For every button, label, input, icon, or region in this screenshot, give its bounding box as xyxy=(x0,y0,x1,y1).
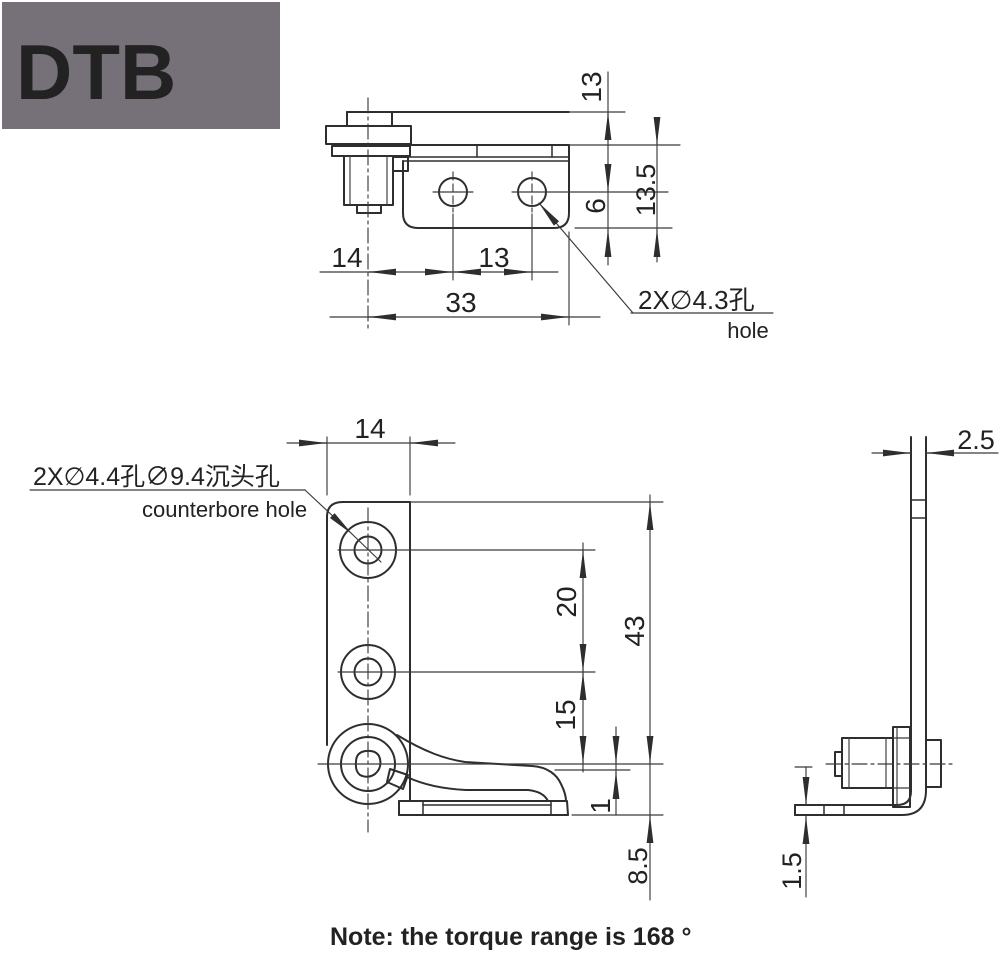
hole-leader-line xyxy=(539,203,633,313)
arm-bottom-edge xyxy=(407,777,548,801)
top-dim-13: 13 xyxy=(576,71,607,102)
side-view-dimensions: 2.5 1.5 xyxy=(777,425,998,897)
front-dim-43: 43 xyxy=(619,615,650,646)
front-dim-20: 20 xyxy=(551,586,582,617)
counterbore-leader-line xyxy=(305,490,352,534)
logo-badge: DTB xyxy=(2,2,280,129)
technical-drawing: DTB xyxy=(0,0,1000,955)
side-view: 2.5 1.5 xyxy=(777,425,998,897)
knuckle-cap-top xyxy=(347,112,392,126)
side-view-geometry xyxy=(795,437,954,815)
knuckle-cap-bottom xyxy=(357,205,381,213)
knuckle-washer xyxy=(332,146,410,156)
top-hole-label: 2X∅4.3孔 xyxy=(638,285,755,315)
top-dim-13-holes: 13 xyxy=(478,242,509,273)
side-dim-1-5: 1.5 xyxy=(777,852,807,890)
knuckle-tab xyxy=(393,157,408,171)
front-hole-label: 2X∅4.4孔∅9.4沉头孔 xyxy=(33,463,280,491)
side-plate-outer xyxy=(795,437,926,815)
front-hole-label-en: counterbore hole xyxy=(142,497,307,522)
top-dim-33: 33 xyxy=(445,287,476,318)
top-hole-label-en: hole xyxy=(727,318,769,343)
torque-body xyxy=(842,738,893,788)
front-view: 14 20 43 15 1 8.5 2X∅4.4孔∅9.4沉头孔 counter… xyxy=(30,413,663,900)
front-dim-1: 1 xyxy=(585,798,616,814)
top-dim-6: 6 xyxy=(580,198,611,214)
note-text: Note: the torque range is 168 ° xyxy=(330,923,691,951)
top-view-geometry xyxy=(326,98,668,330)
front-dim-8-5: 8.5 xyxy=(623,847,653,885)
top-view: 13 13.5 6 14 13 33 2X∅4.3孔 hole xyxy=(320,71,773,343)
side-dim-2-5: 2.5 xyxy=(957,425,995,455)
drawing-page: DTB xyxy=(0,0,1000,955)
top-dim-14: 14 xyxy=(331,242,362,273)
arm-top-edge xyxy=(397,735,566,801)
front-dim-15: 15 xyxy=(550,699,581,730)
top-dim-13-5: 13.5 xyxy=(631,164,661,217)
front-dim-14: 14 xyxy=(354,413,385,444)
torque-stem xyxy=(893,727,910,807)
logo-text: DTB xyxy=(16,28,176,116)
